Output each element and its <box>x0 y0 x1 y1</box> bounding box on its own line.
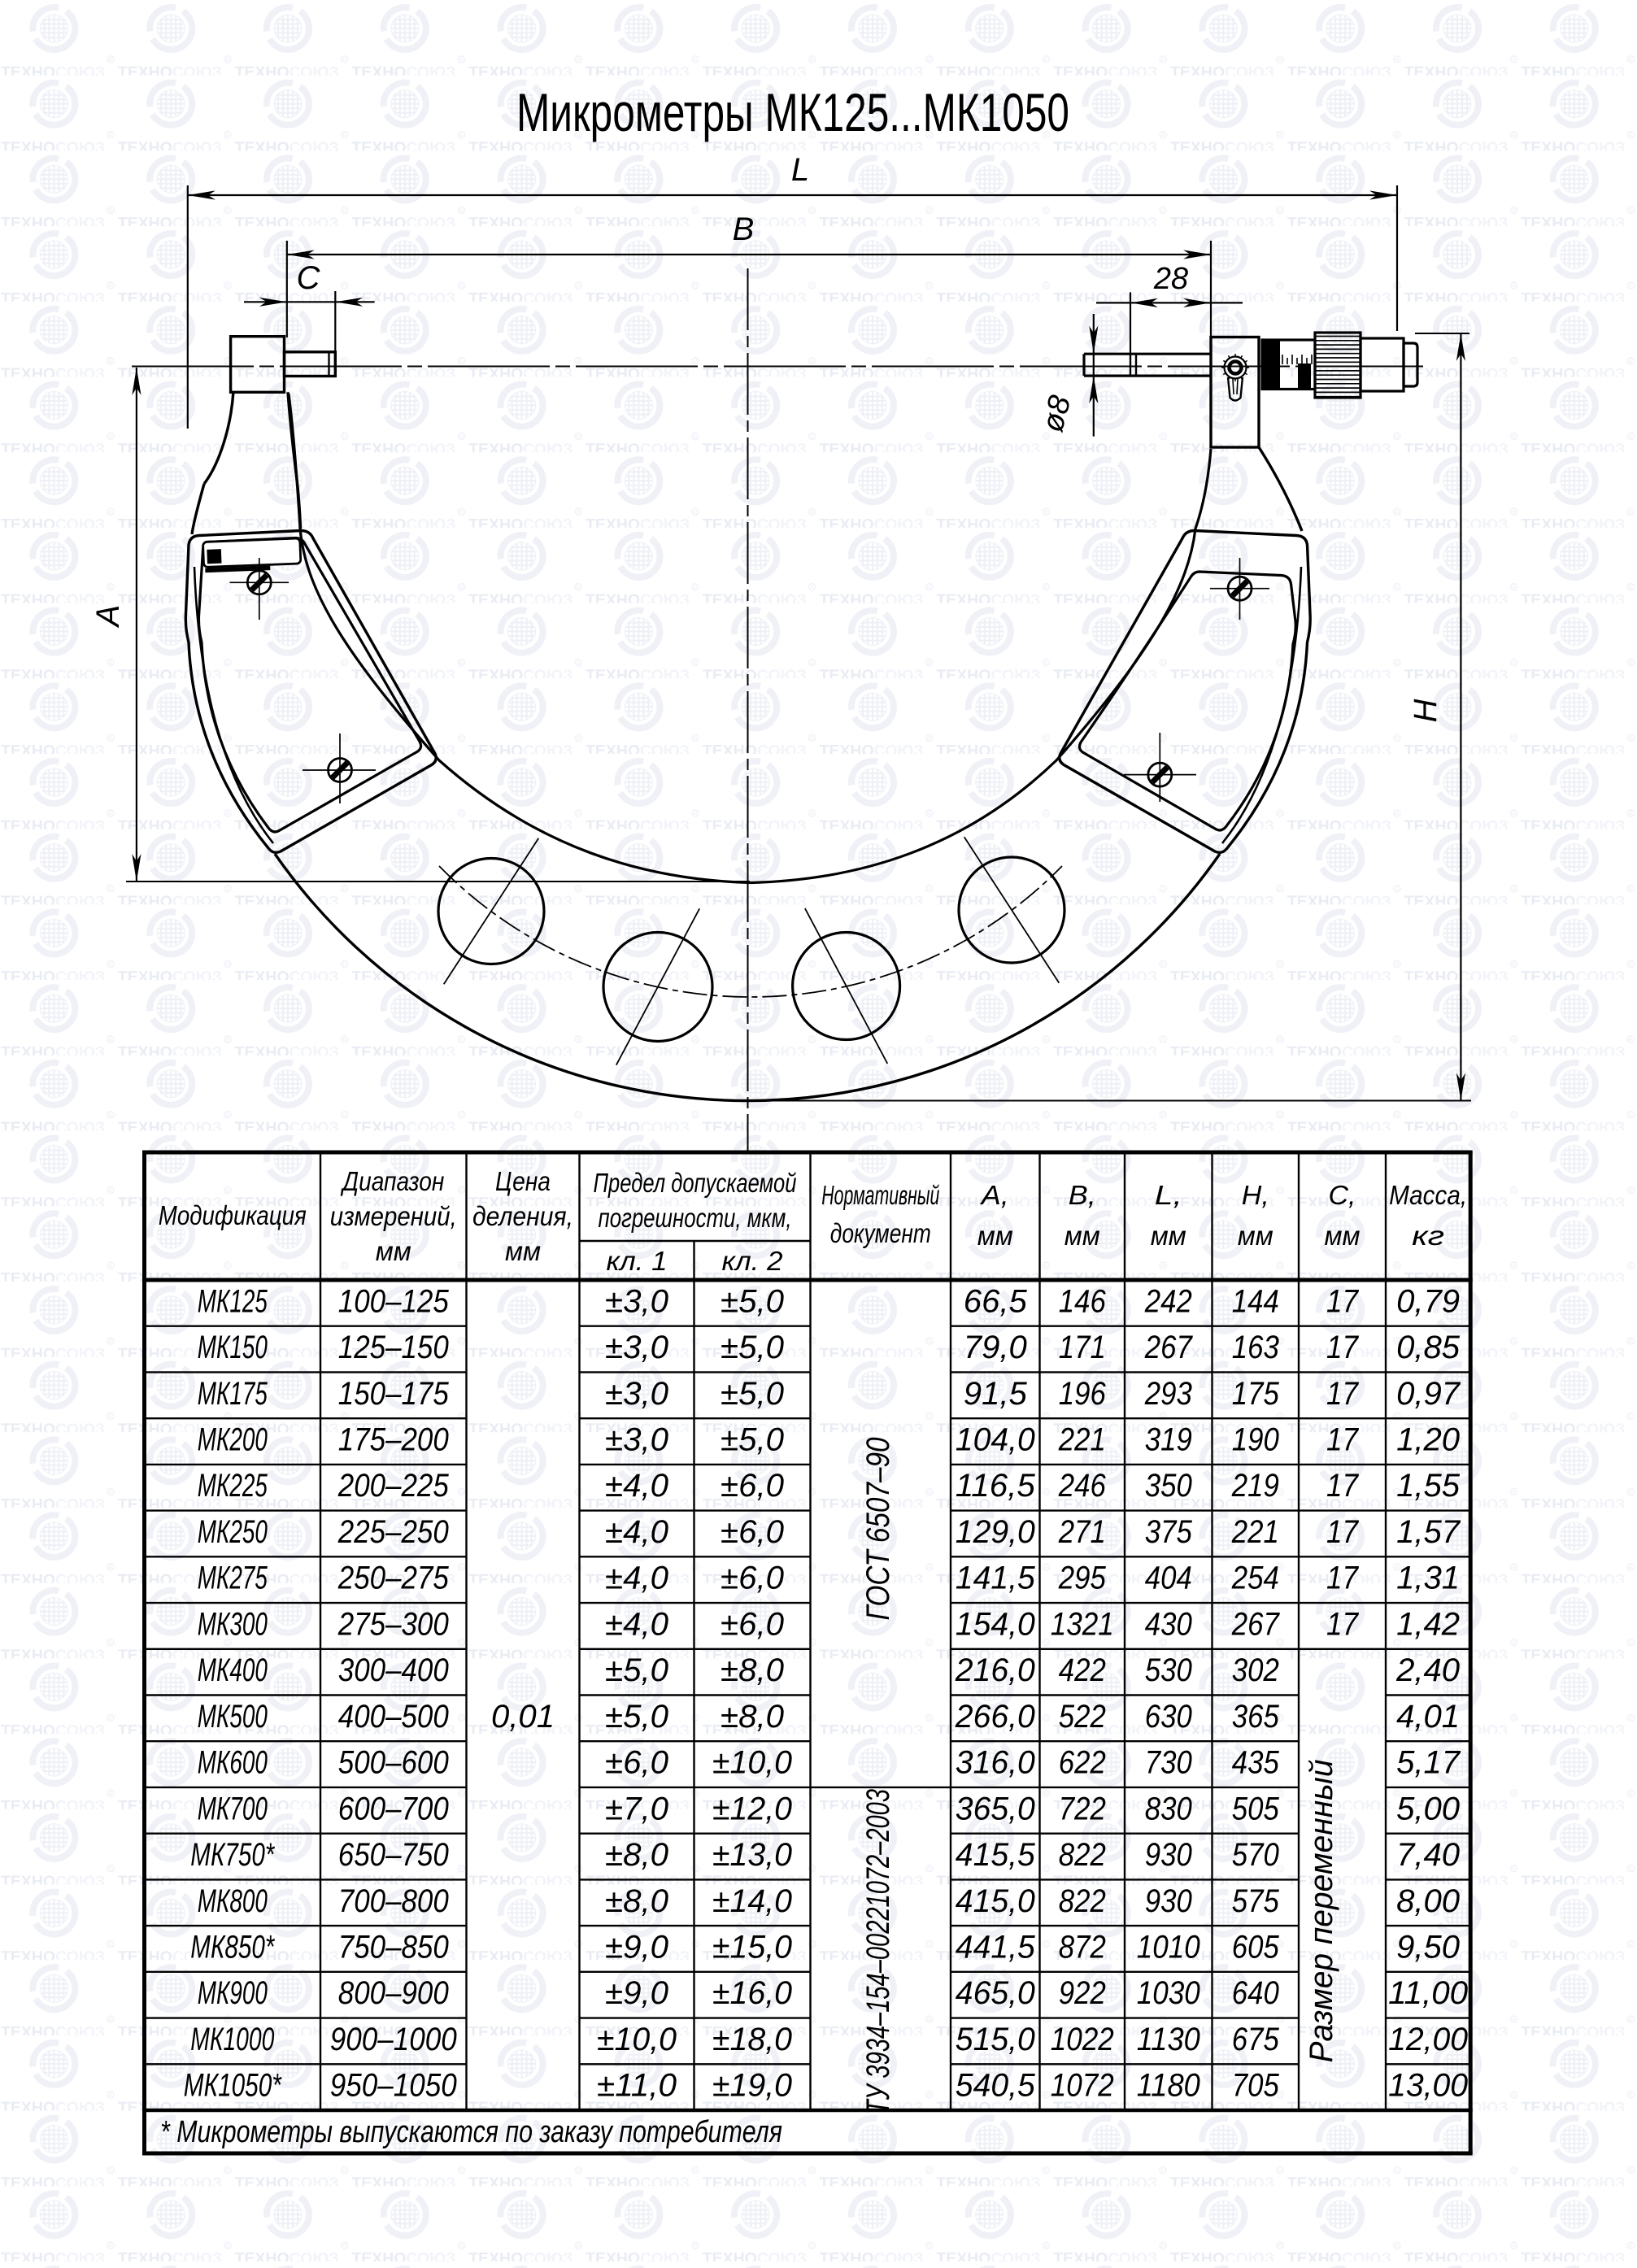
svg-text:1,31: 1,31 <box>1396 1561 1460 1596</box>
svg-text:МК850*: МК850* <box>190 1930 275 1965</box>
svg-text:±8,0: ±8,0 <box>605 1837 668 1873</box>
svg-text:МК250: МК250 <box>198 1514 268 1550</box>
svg-text:100–125: 100–125 <box>338 1283 450 1319</box>
svg-text:МК200: МК200 <box>198 1422 268 1458</box>
svg-text:В: В <box>733 211 755 247</box>
svg-text:141,5: 141,5 <box>956 1561 1036 1596</box>
svg-text:522: 522 <box>1059 1699 1106 1735</box>
svg-text:1,55: 1,55 <box>1396 1468 1461 1504</box>
svg-text:190: 190 <box>1232 1422 1279 1458</box>
svg-text:293: 293 <box>1144 1376 1192 1412</box>
svg-text:погрешности, мкм,: погрешности, мкм, <box>599 1203 792 1233</box>
svg-text:мм: мм <box>1325 1221 1361 1251</box>
svg-text:1010: 1010 <box>1137 1930 1200 1965</box>
svg-text:422: 422 <box>1059 1652 1106 1688</box>
svg-text:622: 622 <box>1059 1745 1106 1781</box>
svg-text:242: 242 <box>1144 1283 1192 1319</box>
svg-text:17: 17 <box>1326 1514 1360 1550</box>
svg-text:365: 365 <box>1232 1699 1280 1735</box>
svg-text:±6,0: ±6,0 <box>721 1514 784 1550</box>
svg-text:116,5: 116,5 <box>956 1468 1036 1504</box>
svg-text:МК175: МК175 <box>198 1376 268 1412</box>
svg-text:мм: мм <box>376 1236 411 1266</box>
svg-text:1022: 1022 <box>1051 2022 1114 2057</box>
svg-text:±10,0: ±10,0 <box>712 1745 792 1781</box>
svg-text:175: 175 <box>1232 1376 1280 1412</box>
svg-text:750–850: 750–850 <box>338 1930 449 1965</box>
svg-text:кг: кг <box>1412 1221 1444 1251</box>
svg-text:1321: 1321 <box>1051 1606 1114 1642</box>
svg-text:±6,0: ±6,0 <box>605 1745 668 1781</box>
svg-text:МК1050*: МК1050* <box>184 2068 282 2104</box>
svg-text:430: 430 <box>1145 1606 1192 1642</box>
svg-text:Предел допускаемой: Предел допускаемой <box>594 1168 797 1198</box>
svg-text:А: А <box>90 605 126 629</box>
svg-text:822: 822 <box>1059 1837 1106 1873</box>
svg-text:Масса,: Масса, <box>1389 1180 1467 1210</box>
svg-text:МК150: МК150 <box>198 1330 268 1365</box>
svg-text:275–300: 275–300 <box>337 1606 449 1642</box>
svg-text:12,00: 12,00 <box>1388 2022 1468 2057</box>
svg-text:465,0: 465,0 <box>956 1975 1035 2011</box>
svg-text:Микрометры МК125...МК1050: Микрометры МК125...МК1050 <box>516 82 1069 142</box>
svg-text:196: 196 <box>1059 1376 1107 1412</box>
svg-text:мм: мм <box>1151 1221 1186 1251</box>
svg-text:МК700: МК700 <box>198 1791 268 1826</box>
svg-text:17: 17 <box>1326 1330 1360 1365</box>
svg-text:ГОСТ 6507–90: ГОСТ 6507–90 <box>860 1438 896 1621</box>
svg-text:17: 17 <box>1326 1468 1360 1504</box>
svg-text:кл. 2: кл. 2 <box>722 1246 783 1276</box>
svg-text:МК300: МК300 <box>198 1606 268 1642</box>
svg-text:±3,0: ±3,0 <box>605 1330 668 1365</box>
svg-text:5,17: 5,17 <box>1396 1745 1461 1781</box>
svg-text:* Микрометры выпускаются по за: * Микрометры выпускаются по заказу потре… <box>160 2115 782 2149</box>
svg-text:350: 350 <box>1145 1468 1192 1504</box>
svg-text:7,40: 7,40 <box>1396 1837 1460 1873</box>
svg-text:±4,0: ±4,0 <box>605 1514 668 1550</box>
svg-text:570: 570 <box>1232 1837 1279 1873</box>
svg-text:МК500: МК500 <box>198 1699 268 1735</box>
svg-text:мм: мм <box>977 1221 1013 1251</box>
svg-text:±9,0: ±9,0 <box>605 1930 668 1965</box>
svg-text:±9,0: ±9,0 <box>605 1975 668 2011</box>
svg-text:L: L <box>791 152 809 188</box>
svg-text:441,5: 441,5 <box>956 1930 1036 1965</box>
svg-text:17: 17 <box>1326 1376 1360 1412</box>
svg-text:246: 246 <box>1058 1468 1107 1504</box>
svg-text:267: 267 <box>1231 1606 1280 1642</box>
svg-text:319: 319 <box>1145 1422 1192 1458</box>
svg-text:±15,0: ±15,0 <box>712 1930 792 1965</box>
svg-text:13,00: 13,00 <box>1388 2068 1468 2104</box>
svg-text:17: 17 <box>1326 1561 1360 1596</box>
svg-text:±14,0: ±14,0 <box>712 1883 792 1919</box>
svg-text:±3,0: ±3,0 <box>605 1376 668 1412</box>
svg-text:±13,0: ±13,0 <box>712 1837 792 1873</box>
svg-text:219: 219 <box>1231 1468 1279 1504</box>
svg-text:175–200: 175–200 <box>338 1422 449 1458</box>
svg-text:Цена: Цена <box>495 1166 551 1196</box>
svg-text:1,42: 1,42 <box>1396 1606 1460 1642</box>
svg-text:91,5: 91,5 <box>964 1376 1028 1412</box>
svg-text:1,20: 1,20 <box>1396 1422 1460 1458</box>
svg-text:А,: А, <box>980 1180 1009 1210</box>
svg-text:600–700: 600–700 <box>338 1791 449 1826</box>
svg-text:66,5: 66,5 <box>964 1283 1028 1319</box>
svg-text:±8,0: ±8,0 <box>721 1652 784 1688</box>
svg-text:375: 375 <box>1145 1514 1193 1550</box>
svg-text:мм: мм <box>1238 1221 1273 1251</box>
svg-text:Диапазон: Диапазон <box>340 1166 444 1196</box>
svg-text:±6,0: ±6,0 <box>721 1606 784 1642</box>
svg-text:822: 822 <box>1059 1883 1106 1919</box>
svg-text:266,0: 266,0 <box>955 1699 1035 1735</box>
svg-text:415,0: 415,0 <box>956 1883 1035 1919</box>
svg-text:±4,0: ±4,0 <box>605 1468 668 1504</box>
svg-text:4,01: 4,01 <box>1396 1699 1460 1735</box>
svg-text:±8,0: ±8,0 <box>605 1883 668 1919</box>
svg-text:930: 930 <box>1145 1883 1192 1919</box>
svg-text:705: 705 <box>1232 2068 1280 2104</box>
svg-text:104,0: 104,0 <box>956 1422 1035 1458</box>
svg-text:800–900: 800–900 <box>338 1975 449 2011</box>
svg-text:МК800: МК800 <box>198 1883 268 1919</box>
svg-text:630: 630 <box>1145 1699 1192 1735</box>
svg-text:171: 171 <box>1059 1330 1106 1365</box>
svg-text:300–400: 300–400 <box>338 1652 449 1688</box>
svg-text:221: 221 <box>1231 1514 1279 1550</box>
svg-text:МК900: МК900 <box>198 1975 268 2011</box>
svg-text:17: 17 <box>1326 1606 1360 1642</box>
svg-text:125–150: 125–150 <box>338 1330 449 1365</box>
svg-text:±5,0: ±5,0 <box>605 1652 668 1688</box>
svg-text:872: 872 <box>1059 1930 1106 1965</box>
svg-text:2,40: 2,40 <box>1395 1652 1460 1688</box>
svg-text:±8,0: ±8,0 <box>721 1699 784 1735</box>
svg-text:8,00: 8,00 <box>1396 1883 1460 1919</box>
svg-text:деления,: деления, <box>472 1201 573 1231</box>
svg-text:Размер переменный: Размер переменный <box>1304 1760 1339 2063</box>
svg-text:±11,0: ±11,0 <box>597 2068 677 2104</box>
svg-text:640: 640 <box>1232 1975 1279 2011</box>
svg-text:Н: Н <box>1408 699 1443 722</box>
svg-text:221: 221 <box>1058 1422 1106 1458</box>
svg-text:575: 575 <box>1232 1883 1280 1919</box>
svg-text:1072: 1072 <box>1051 2068 1114 2104</box>
svg-text:722: 722 <box>1059 1791 1106 1826</box>
svg-text:675: 675 <box>1232 2022 1280 2057</box>
svg-text:404: 404 <box>1145 1561 1192 1596</box>
svg-text:0,79: 0,79 <box>1396 1283 1460 1319</box>
svg-text:±18,0: ±18,0 <box>712 2022 792 2057</box>
svg-text:950–1050: 950–1050 <box>330 2068 457 2104</box>
svg-text:мм: мм <box>505 1236 541 1266</box>
svg-text:±3,0: ±3,0 <box>605 1283 668 1319</box>
svg-text:5,00: 5,00 <box>1396 1791 1460 1826</box>
svg-text:ТУ 3934–154–00221072–2003: ТУ 3934–154–00221072–2003 <box>860 1789 896 2114</box>
svg-text:±3,0: ±3,0 <box>605 1422 668 1458</box>
svg-text:900–1000: 900–1000 <box>330 2022 457 2057</box>
svg-text:250–275: 250–275 <box>337 1561 450 1596</box>
svg-text:365,0: 365,0 <box>956 1791 1035 1826</box>
svg-text:Нормативный: Нормативный <box>821 1180 939 1210</box>
svg-text:163: 163 <box>1232 1330 1279 1365</box>
svg-text:150–175: 150–175 <box>338 1376 450 1412</box>
svg-text:515,0: 515,0 <box>956 2022 1035 2057</box>
svg-text:129,0: 129,0 <box>956 1514 1035 1550</box>
svg-text:17: 17 <box>1326 1283 1360 1319</box>
svg-text:225–250: 225–250 <box>337 1514 449 1550</box>
svg-text:1130: 1130 <box>1137 2022 1200 2057</box>
svg-text:0,85: 0,85 <box>1396 1330 1461 1365</box>
svg-text:17: 17 <box>1326 1422 1360 1458</box>
svg-text:216,0: 216,0 <box>955 1652 1035 1688</box>
svg-text:200–225: 200–225 <box>337 1468 450 1504</box>
svg-text:605: 605 <box>1232 1930 1280 1965</box>
svg-text:кл. 1: кл. 1 <box>607 1246 668 1276</box>
svg-text:1180: 1180 <box>1137 2068 1200 2104</box>
svg-text:МК125: МК125 <box>198 1283 268 1319</box>
svg-text:505: 505 <box>1232 1791 1280 1826</box>
svg-text:±10,0: ±10,0 <box>597 2022 677 2057</box>
svg-text:146: 146 <box>1059 1283 1107 1319</box>
svg-text:530: 530 <box>1145 1652 1192 1688</box>
svg-text:144: 144 <box>1232 1283 1279 1319</box>
svg-text:435: 435 <box>1232 1745 1280 1781</box>
svg-text:930: 930 <box>1145 1837 1192 1873</box>
svg-text:МК400: МК400 <box>198 1652 268 1688</box>
svg-text:922: 922 <box>1059 1975 1106 2011</box>
svg-text:11,00: 11,00 <box>1388 1975 1468 2011</box>
svg-text:0,97: 0,97 <box>1396 1376 1461 1412</box>
svg-text:±6,0: ±6,0 <box>721 1468 784 1504</box>
svg-text:295: 295 <box>1058 1561 1107 1596</box>
svg-text:830: 830 <box>1145 1791 1192 1826</box>
svg-text:±4,0: ±4,0 <box>605 1561 668 1596</box>
svg-text:МК225: МК225 <box>198 1468 268 1504</box>
svg-text:650–750: 650–750 <box>338 1837 449 1873</box>
svg-text:С: С <box>297 260 321 296</box>
svg-text:измерений,: измерений, <box>330 1201 457 1231</box>
svg-text:В,: В, <box>1069 1180 1096 1210</box>
svg-text:±16,0: ±16,0 <box>712 1975 792 2011</box>
svg-text:±7,0: ±7,0 <box>605 1791 668 1826</box>
svg-text:документ: документ <box>830 1218 931 1248</box>
svg-text:МК750*: МК750* <box>190 1837 275 1873</box>
svg-text:МК1000: МК1000 <box>190 2022 274 2057</box>
svg-text:±5,0: ±5,0 <box>721 1283 784 1319</box>
svg-text:316,0: 316,0 <box>956 1745 1035 1781</box>
svg-text:±6,0: ±6,0 <box>721 1561 784 1596</box>
svg-text:±5,0: ±5,0 <box>721 1330 784 1365</box>
svg-text:267: 267 <box>1144 1330 1193 1365</box>
svg-text:МК600: МК600 <box>198 1745 268 1781</box>
svg-text:700–800: 700–800 <box>338 1883 449 1919</box>
svg-text:±19,0: ±19,0 <box>712 2068 792 2104</box>
svg-text:±5,0: ±5,0 <box>721 1422 784 1458</box>
svg-text:±5,0: ±5,0 <box>721 1376 784 1412</box>
svg-text:мм: мм <box>1064 1221 1100 1251</box>
svg-text:730: 730 <box>1145 1745 1192 1781</box>
svg-text:1,57: 1,57 <box>1396 1514 1461 1550</box>
svg-text:±4,0: ±4,0 <box>605 1606 668 1642</box>
svg-text:L,: L, <box>1155 1180 1182 1210</box>
svg-text:С,: С, <box>1329 1180 1356 1210</box>
svg-text:МК275: МК275 <box>198 1561 268 1596</box>
svg-text:154,0: 154,0 <box>956 1606 1035 1642</box>
svg-text:28: 28 <box>1153 262 1188 296</box>
svg-text:540,5: 540,5 <box>956 2068 1036 2104</box>
svg-text:302: 302 <box>1232 1652 1279 1688</box>
svg-text:1030: 1030 <box>1137 1975 1200 2011</box>
svg-text:Н,: Н, <box>1242 1180 1269 1210</box>
svg-text:9,50: 9,50 <box>1396 1930 1460 1965</box>
svg-text:415,5: 415,5 <box>956 1837 1036 1873</box>
svg-text:500–600: 500–600 <box>338 1745 449 1781</box>
svg-text:400–500: 400–500 <box>338 1699 449 1735</box>
svg-text:±5,0: ±5,0 <box>605 1699 668 1735</box>
svg-text:0,01: 0,01 <box>491 1699 555 1735</box>
svg-text:±12,0: ±12,0 <box>712 1791 792 1826</box>
svg-text:Модификация: Модификация <box>159 1200 307 1230</box>
svg-text:271: 271 <box>1058 1514 1106 1550</box>
svg-text:254: 254 <box>1231 1561 1279 1596</box>
svg-text:79,0: 79,0 <box>964 1330 1027 1365</box>
